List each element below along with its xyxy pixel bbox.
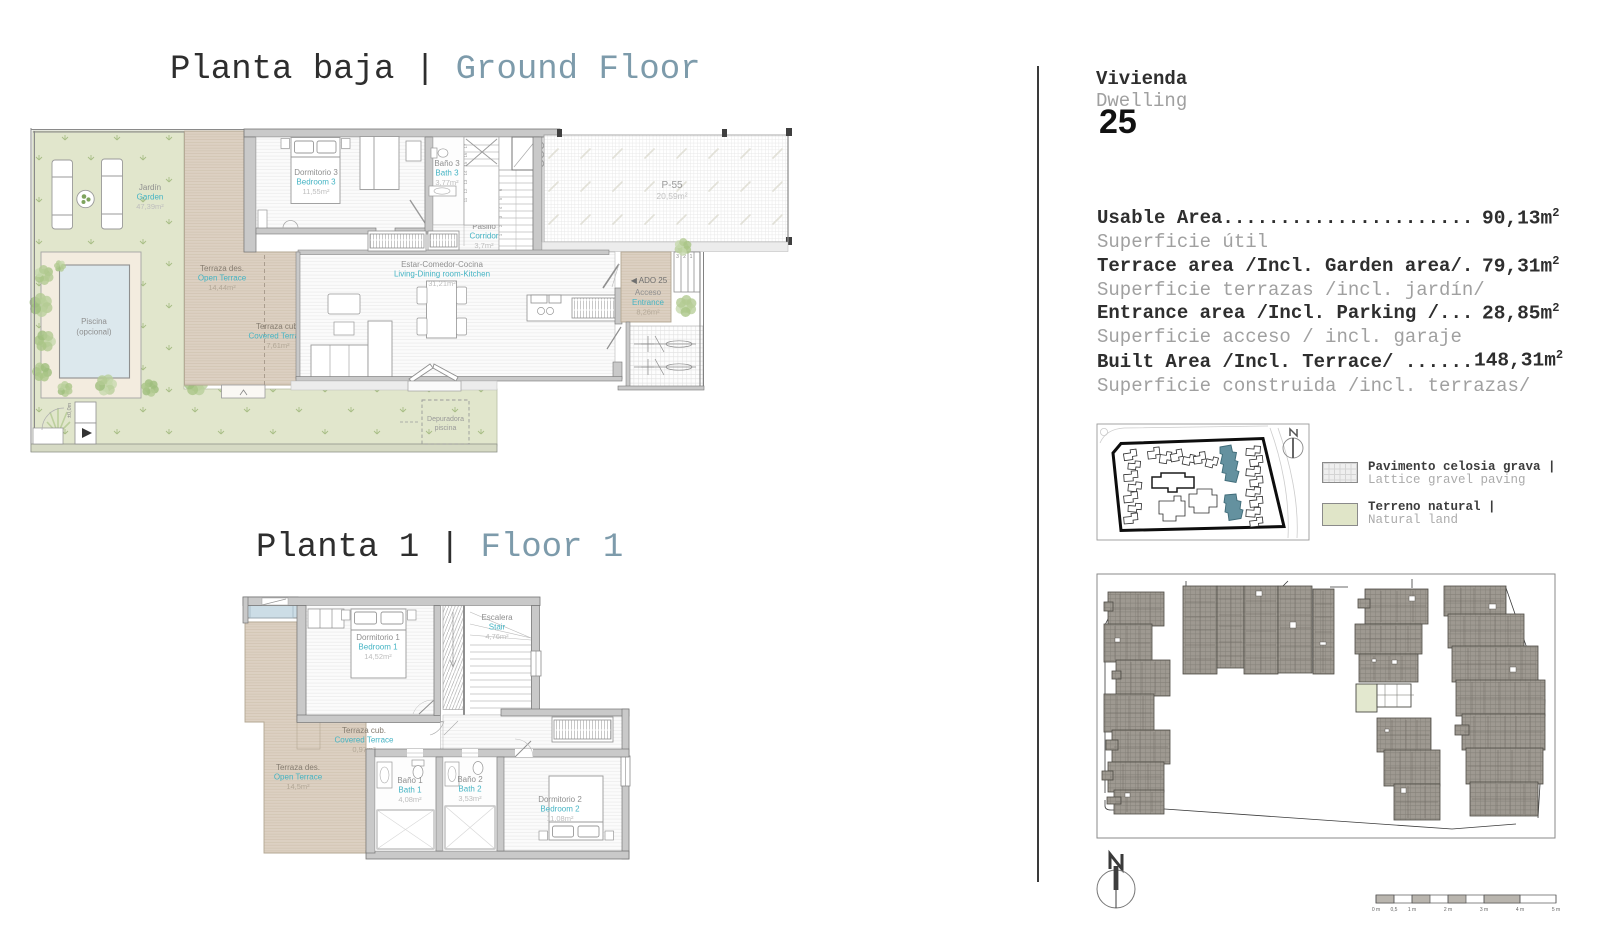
svg-text:12: 12 [463,188,468,193]
svg-text:Baño 3: Baño 3 [434,159,460,168]
svg-text:14,52m²: 14,52m² [364,652,392,661]
svg-text:Bedroom 2: Bedroom 2 [540,805,580,814]
svg-text:17: 17 [463,143,468,148]
svg-text:3,53m²: 3,53m² [458,794,482,803]
svg-text:Baño 2: Baño 2 [457,775,483,784]
svg-text:Terraza des.: Terraza des. [276,763,320,772]
svg-text:3,77m²: 3,77m² [435,178,459,187]
svg-text:Bath 3: Bath 3 [435,169,459,178]
svg-text:Bath 2: Bath 2 [458,785,482,794]
svg-text:Dormitorio 2: Dormitorio 2 [538,795,582,804]
svg-text:◀ ADO 25: ◀ ADO 25 [631,276,668,285]
svg-text:±0,0m: ±0,0m [67,402,73,418]
svg-text:Depuradora: Depuradora [427,416,464,423]
svg-text:Living-Dining room-Kitchen: Living-Dining room-Kitchen [394,270,490,279]
svg-text:2 m: 2 m [1444,907,1452,913]
svg-text:Dormitorio 3: Dormitorio 3 [294,168,338,177]
svg-text:Open Terrace: Open Terrace [274,773,323,782]
svg-text:15: 15 [463,161,468,166]
svg-text:47,39m²: 47,39m² [136,202,164,211]
svg-text:piscina: piscina [435,425,457,432]
svg-text:Jardín: Jardín [139,183,161,192]
svg-text:P-55: P-55 [661,180,683,191]
svg-text:7,61m²: 7,61m² [266,341,290,350]
svg-text:Garden: Garden [137,193,164,202]
svg-text:3: 3 [676,254,679,260]
svg-text:Stair: Stair [489,623,506,632]
svg-text:(opcional): (opcional) [76,328,111,337]
svg-text:Corridor: Corridor [470,232,499,241]
svg-text:11,08m²: 11,08m² [547,814,574,823]
svg-text:Open Terrace: Open Terrace [198,274,247,283]
svg-text:Terraza des.: Terraza des. [200,264,244,273]
svg-text:4 m: 4 m [1516,907,1524,913]
svg-text:31,21m²: 31,21m² [428,279,456,288]
svg-text:20,59m²: 20,59m² [656,191,687,201]
svg-text:13: 13 [463,179,468,184]
svg-text:14,5m²: 14,5m² [286,782,310,791]
svg-text:Bath 1: Bath 1 [398,786,422,795]
svg-text:16: 16 [463,152,468,157]
svg-text:Entrance: Entrance [632,298,665,307]
svg-text:Bedroom 1: Bedroom 1 [358,643,398,652]
svg-text:4,76m²: 4,76m² [485,632,509,641]
svg-text:Dormitorio 1: Dormitorio 1 [356,633,400,642]
svg-text:5 m: 5 m [1552,907,1560,913]
svg-text:3,7m²: 3,7m² [474,241,494,250]
svg-text:Piscina: Piscina [81,317,107,326]
svg-text:Terraza cub.: Terraza cub. [256,322,300,331]
svg-text:Terraza cub.: Terraza cub. [342,726,386,735]
svg-text:Bedroom 3: Bedroom 3 [296,178,336,187]
svg-text:Acceso: Acceso [635,288,662,297]
svg-text:Baño 1: Baño 1 [397,776,423,785]
svg-text:0,5: 0,5 [1391,907,1398,913]
svg-text:14: 14 [463,170,468,175]
svg-text:14,44m²: 14,44m² [208,283,236,292]
svg-text:0 m: 0 m [1372,907,1380,913]
svg-text:1 m: 1 m [1408,907,1416,913]
svg-text:1: 1 [690,254,693,260]
svg-text:11,55m²: 11,55m² [303,187,330,196]
svg-text:Covered Terrace: Covered Terrace [335,736,395,745]
svg-text:3 m: 3 m [1480,907,1488,913]
svg-text:4,08m²: 4,08m² [398,795,422,804]
svg-text:8,26m²: 8,26m² [636,308,660,317]
svg-text:Escalera: Escalera [481,613,513,622]
svg-text:11: 11 [463,197,468,202]
svg-text:Estar-Comedor-Cocina: Estar-Comedor-Cocina [401,260,483,269]
